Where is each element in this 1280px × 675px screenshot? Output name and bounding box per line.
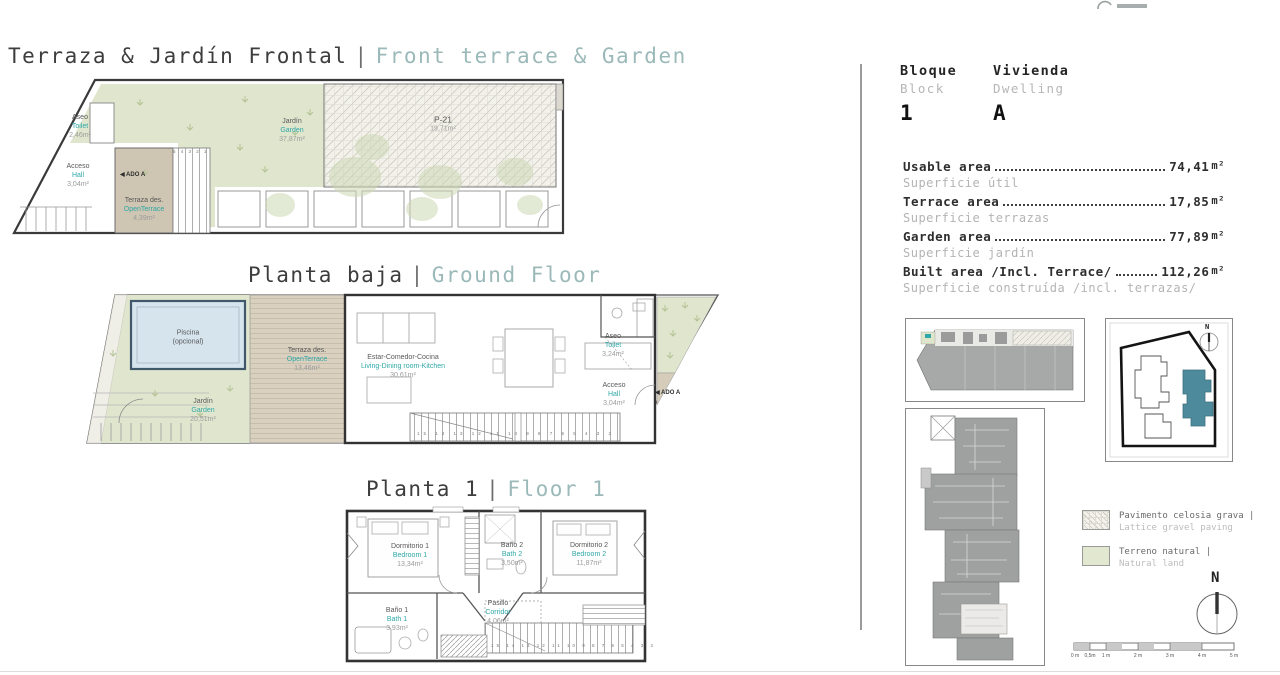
- area-unit: m²: [1211, 230, 1225, 242]
- area-row-built: Built area /Incl. Terrace/112,26m² Super…: [903, 264, 1225, 295]
- room-label-dormitorio-1: Dormitorio 1 Bedroom 1 13,34m²: [391, 543, 429, 569]
- area-row-usable: Usable area74,41m² Superficie útil: [903, 159, 1225, 190]
- room-label-dormitorio-2: Dormitorio 2 Bedroom 2 11,87m²: [570, 542, 608, 568]
- page-bottom-rule: [0, 671, 1280, 672]
- room-label-terraza-ground: Terraza des. OpenTerrace 13,46m²: [287, 347, 327, 373]
- area-label: Usable area: [903, 159, 991, 174]
- area-row-garden: Garden area77,89m² Superficie jardín: [903, 229, 1225, 260]
- room-label-pasillo: Pasillo Corridor 4,06m²: [485, 600, 510, 626]
- area-label-es: Superficie terrazas: [903, 211, 1225, 225]
- block-label-es: Bloque: [900, 63, 957, 79]
- room-label-acceso-top: Acceso Hall 3,04m²: [67, 163, 90, 189]
- plan-ground-floor: Piscina (opcional) Terraza des. OpenTerr…: [85, 293, 720, 445]
- room-label-acceso-ground: Acceso Hall 3,04m²: [603, 382, 626, 408]
- scale-bar: [1073, 642, 1239, 652]
- area-label: Garden area: [903, 229, 991, 244]
- north-letter-location-plan: N: [1205, 323, 1209, 331]
- section-title-ground-floor: Planta baja|Ground Floor: [248, 263, 601, 287]
- area-unit: m²: [1211, 195, 1225, 207]
- dwelling-label-en: Dwelling: [993, 81, 1069, 96]
- section-title-floor-1: Planta 1|Floor 1: [366, 477, 606, 501]
- room-label-bano-1: Baño 1 Bath 1 3,93m²: [386, 607, 408, 633]
- block-header: Bloque Block 1: [900, 63, 957, 125]
- scale-label-2: 2 m: [1134, 653, 1142, 659]
- scale-label-5: 5 m: [1230, 653, 1238, 659]
- stair-numbers-top: 5 4 3 2 1: [173, 149, 209, 154]
- room-label-jardin-ground: Jardín Garden 20,51m²: [190, 398, 216, 424]
- dotted-leader: [995, 169, 1165, 171]
- block-label-en: Block: [900, 81, 957, 96]
- title-es: Planta baja: [248, 263, 404, 287]
- legend-item-lattice: Pavimento celosia grava | Lattice gravel…: [1082, 510, 1272, 534]
- dotted-leader: [995, 239, 1165, 241]
- scale-label-3: 3 m: [1166, 653, 1174, 659]
- dwelling-label-es: Vivienda: [993, 63, 1069, 79]
- room-label-bano-2: Baño 2 Bath 2 3,50m²: [501, 542, 523, 568]
- area-label-es: Superficie útil: [903, 176, 1225, 190]
- stair-numbers-ground: 15 14 13 12 11 10 9 8 7 6 5 4 3 2: [417, 431, 615, 436]
- floorplan-brochure-page: { "page": { "section1": {"title_es": "Te…: [0, 0, 1280, 675]
- dotted-leader: [1003, 204, 1165, 206]
- north-letter-compass: N: [1211, 570, 1219, 586]
- dwelling-value: A: [993, 101, 1069, 125]
- legend-label-en: Natural land: [1119, 558, 1211, 570]
- room-label-piscina: Piscina (opcional): [173, 329, 204, 347]
- title-en: Floor 1: [507, 477, 606, 501]
- dotted-leader: [1116, 274, 1158, 276]
- legend-label-en: Lattice gravel paving: [1119, 522, 1254, 534]
- title-es: Terraza & Jardín Frontal: [8, 44, 347, 68]
- title-en: Ground Floor: [432, 263, 602, 287]
- panel-divider: [860, 64, 862, 630]
- room-label-living: Estar-Comedor-Cocina Living-Dining room-…: [361, 354, 445, 380]
- natural-land-swatch: [1082, 546, 1110, 566]
- area-value: 74,41: [1169, 159, 1209, 174]
- marker-ado-a-ground: ◀ ADO A: [655, 389, 680, 396]
- title-separator: |: [354, 44, 368, 68]
- title-en: Front terrace & Garden: [376, 44, 687, 68]
- title-separator: |: [411, 263, 425, 287]
- stair-numbers-floor1: 15 14 13 12 11 10 9 8 7 6 5 4 3 2: [491, 643, 656, 648]
- block-keyplan: [905, 408, 1045, 666]
- legend-item-natural-land: Terreno natural | Natural land: [1082, 546, 1272, 570]
- site-strip-keyplan: [905, 318, 1085, 402]
- area-value: 112,26: [1161, 264, 1209, 279]
- area-label: Built area /Incl. Terrace/: [903, 264, 1112, 279]
- lattice-swatch: [1082, 510, 1110, 530]
- title-es: Planta 1: [366, 477, 479, 501]
- title-separator: |: [486, 477, 500, 501]
- areas-table: Usable area74,41m² Superficie útil Terra…: [903, 159, 1225, 299]
- dwelling-header: Vivienda Dwelling A: [993, 63, 1069, 125]
- plan-floor-1: Dormitorio 1 Bedroom 1 13,34m² Baño 2 Ba…: [345, 503, 648, 667]
- area-value: 17,85: [1169, 194, 1209, 209]
- area-label-es: Superficie jardín: [903, 246, 1225, 260]
- area-unit: m²: [1211, 265, 1225, 277]
- area-label: Terrace area: [903, 194, 999, 209]
- room-label-p21: P-21 19,71m²: [430, 114, 456, 133]
- legend-label-es: Pavimento celosia grava |: [1119, 510, 1254, 522]
- location-plan: [1105, 318, 1233, 462]
- room-label-aseo-ground: Aseo Toilet 3,24m²: [602, 333, 624, 359]
- section-title-terrace-garden: Terraza & Jardín Frontal|Front terrace &…: [8, 44, 687, 68]
- plan-front-terrace-garden: Aseo Toilet 2,46m² Jardín Garden 37,87m²…: [10, 77, 567, 235]
- scale-label-4: 4 m: [1198, 653, 1206, 659]
- cropped-logo-mark: [1090, 0, 1160, 10]
- block-value: 1: [900, 101, 957, 125]
- room-label-aseo-top: Aseo Toilet 2,46m²: [69, 114, 91, 140]
- scale-label-05: 0,5m: [1084, 653, 1095, 659]
- room-label-jardin-top: Jardín Garden 37,87m²: [279, 118, 305, 144]
- scale-label-1: 1 m: [1102, 653, 1110, 659]
- legend-label-es: Terreno natural |: [1119, 546, 1211, 558]
- room-label-terraza-top: Terraza des. OpenTerrace 4,39m²: [124, 197, 164, 223]
- area-label-es: Superficie construída /incl. terrazas/: [903, 281, 1225, 295]
- area-row-terrace: Terrace area17,85m² Superficie terrazas: [903, 194, 1225, 225]
- marker-ado-a-top: ◀ ADO A: [120, 171, 145, 178]
- area-value: 77,89: [1169, 229, 1209, 244]
- scale-label-0: 0 m: [1071, 653, 1079, 659]
- plan-top-drawing: [10, 77, 567, 235]
- area-unit: m²: [1211, 160, 1225, 172]
